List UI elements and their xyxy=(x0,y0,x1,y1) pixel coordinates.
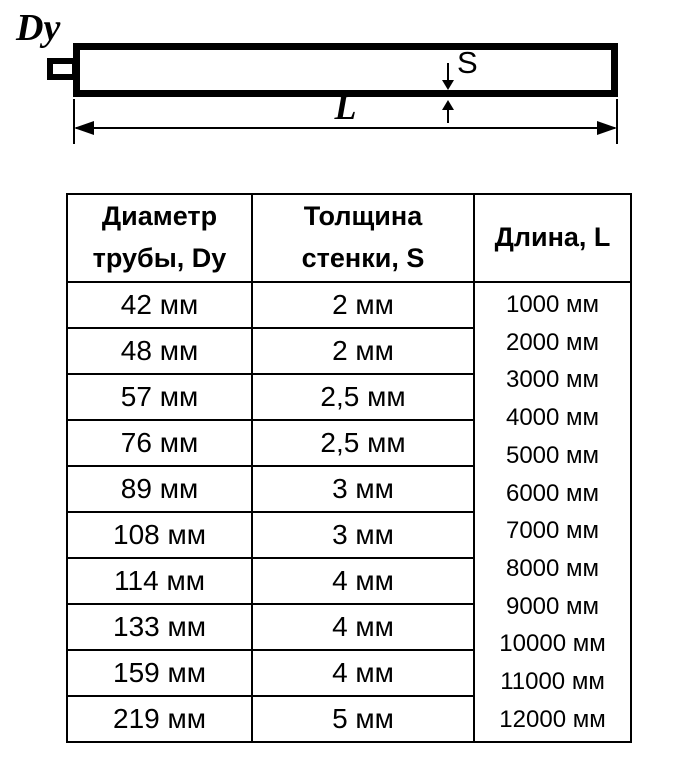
thickness-cell: 3 мм xyxy=(252,512,474,558)
diameter-cell: 76 мм xyxy=(67,420,252,466)
diameter-cell: 57 мм xyxy=(67,374,252,420)
diameter-cell: 108 мм xyxy=(67,512,252,558)
diameter-cell: 219 мм xyxy=(67,696,252,742)
thickness-cell: 2 мм xyxy=(252,282,474,328)
thickness-cell: 2,5 мм xyxy=(252,374,474,420)
length-value: 7000 мм xyxy=(475,512,630,550)
pipe-technical-drawing: Dy S L xyxy=(0,0,681,178)
header-pipe-diameter: Диаметр трубы, Dy xyxy=(67,194,252,282)
thickness-cell: 4 мм xyxy=(252,604,474,650)
length-value: 6000 мм xyxy=(475,475,630,513)
thickness-cell: 4 мм xyxy=(252,558,474,604)
length-value: 9000 мм xyxy=(475,588,630,626)
pipe-spec-table: Диаметр трубы, Dy Толщина стенки, S Длин… xyxy=(66,193,632,743)
thickness-cell: 3 мм xyxy=(252,466,474,512)
table-header-row: Диаметр трубы, Dy Толщина стенки, S Длин… xyxy=(67,194,631,282)
header-wall-thickness: Толщина стенки, S xyxy=(252,194,474,282)
spec-table-body: 42 мм2 мм1000 мм2000 мм3000 мм4000 мм500… xyxy=(67,282,631,742)
thickness-cell: 2,5 мм xyxy=(252,420,474,466)
table-row: 42 мм2 мм1000 мм2000 мм3000 мм4000 мм500… xyxy=(67,282,631,328)
length-value: 11000 мм xyxy=(475,663,630,701)
diameter-cell: 114 мм xyxy=(67,558,252,604)
wall-thickness-label: S xyxy=(457,45,478,81)
length-values-cell: 1000 мм2000 мм3000 мм4000 мм5000 мм6000 … xyxy=(474,282,631,742)
diameter-cell: 89 мм xyxy=(67,466,252,512)
thickness-cell: 4 мм xyxy=(252,650,474,696)
diameter-cell: 133 мм xyxy=(67,604,252,650)
thickness-cell: 5 мм xyxy=(252,696,474,742)
length-value: 4000 мм xyxy=(475,399,630,437)
diameter-cell: 48 мм xyxy=(67,328,252,374)
diameter-cell: 159 мм xyxy=(67,650,252,696)
thickness-cell: 2 мм xyxy=(252,328,474,374)
length-value: 10000 мм xyxy=(475,625,630,663)
diameter-dy-label: Dy xyxy=(16,6,60,50)
length-value: 5000 мм xyxy=(475,437,630,475)
length-value: 2000 мм xyxy=(475,324,630,362)
length-value: 1000 мм xyxy=(475,286,630,324)
pipe-spec-sheet: Dy S L Диаметр трубы, Dy Толщина стенки,… xyxy=(0,0,681,784)
length-label: L xyxy=(73,86,618,128)
diameter-cell: 42 мм xyxy=(67,282,252,328)
length-value: 12000 мм xyxy=(475,701,630,739)
length-value: 3000 мм xyxy=(475,361,630,399)
length-value: 8000 мм xyxy=(475,550,630,588)
wall-thickness-arrow-down xyxy=(447,63,449,81)
header-length: Длина, L xyxy=(474,194,631,282)
